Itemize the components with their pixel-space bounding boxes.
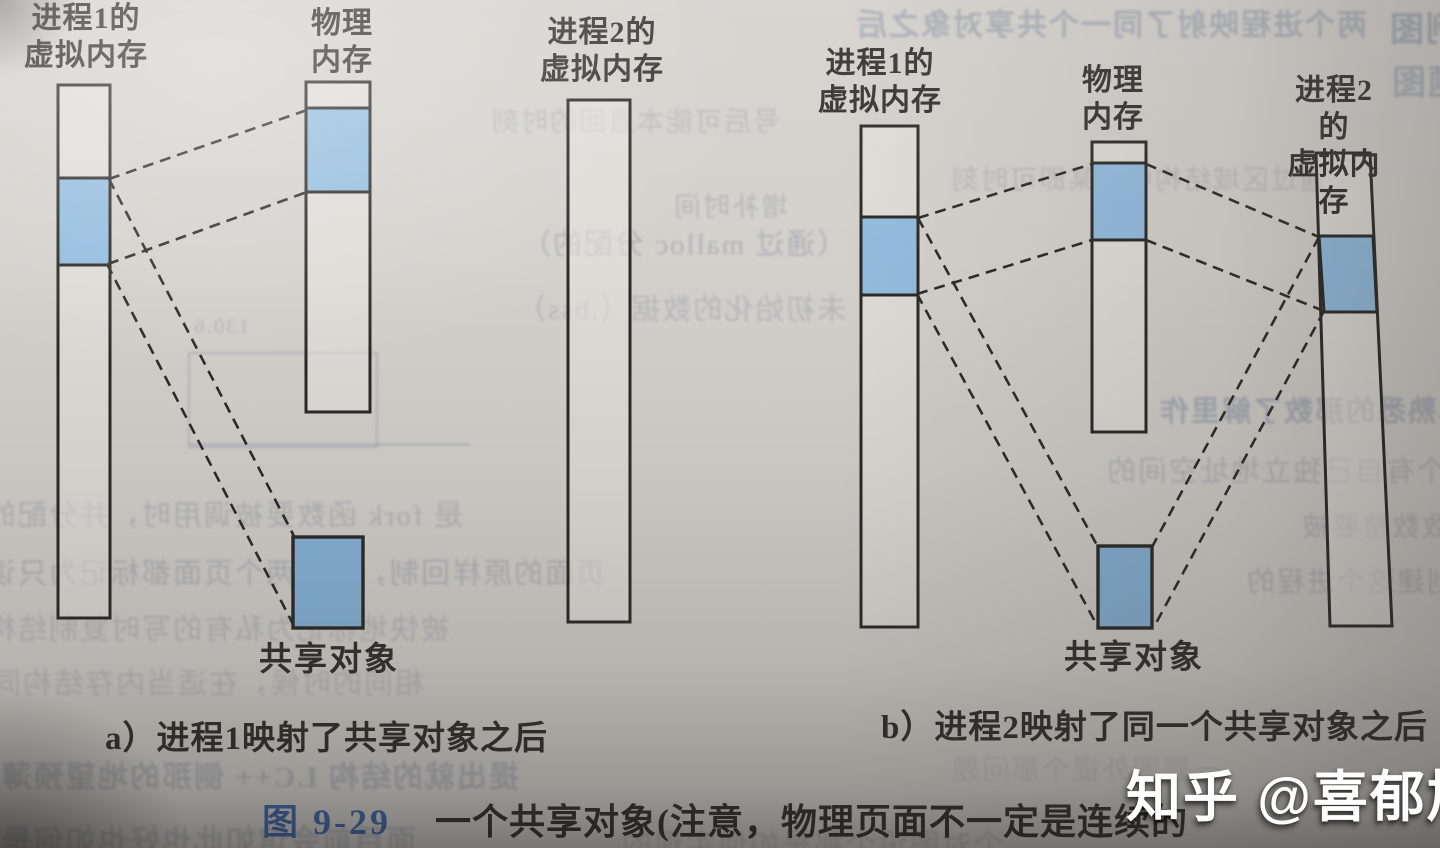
process2-shared-region-b xyxy=(1319,236,1377,312)
process2-vm-column-a xyxy=(568,100,630,622)
diagram-a xyxy=(58,82,630,628)
label-a-physical-mem: 物理 内存 xyxy=(311,5,373,79)
label-b-process1-vm: 进程1的 虚拟内存 xyxy=(818,45,942,119)
mapping-line xyxy=(107,264,294,626)
mapping-line xyxy=(918,164,1092,218)
shared-object-box-b xyxy=(1098,546,1152,628)
process1-shared-region-a xyxy=(58,178,110,265)
mapping-line xyxy=(917,240,1092,294)
mapping-line xyxy=(917,294,1098,627)
label-a-process1-vm: 进程1的 虚拟内存 xyxy=(24,0,148,74)
physical-shared-pages-b xyxy=(1092,163,1146,240)
figure-caption-text: 一个共享对象(注意，物理页面不一定是连续的 xyxy=(435,802,1188,842)
label-b-shared-object: 共享对象 xyxy=(1064,640,1204,677)
label-b-physical-mem: 物理 内存 xyxy=(1082,62,1144,136)
mapping-line xyxy=(109,110,307,179)
mapping-line xyxy=(1152,237,1319,547)
process2-vm-column-b xyxy=(1316,153,1392,626)
caption-diagram-a: a）进程1映射了共享对象之后 xyxy=(105,711,548,759)
mapping-line xyxy=(109,179,295,538)
label-a-process2-vm: 进程2的 虚拟内存 xyxy=(540,14,664,88)
label-b-process2-vm: 进程2的 虚拟内存 xyxy=(1281,72,1387,220)
caption-diagram-b: b）进程2映射了同一个共享对象之后 xyxy=(881,700,1428,748)
physical-shared-pages-a xyxy=(306,108,370,192)
process1-shared-region-b xyxy=(861,217,918,295)
process1-vm-column-a xyxy=(58,85,110,618)
mapping-line xyxy=(1154,311,1324,627)
mapping-line xyxy=(108,192,307,264)
textbook-photo-page: 两个进程映射了同一个共享对象之后 例图 题图 号后可能本直回的时刻 增补时间 （… xyxy=(0,0,1440,848)
mapping-line xyxy=(918,218,1098,547)
shared-object-box-a xyxy=(293,537,363,628)
label-a-shared-object: 共享对象 xyxy=(259,642,399,679)
zhihu-watermark: 知乎 @喜郁旭 xyxy=(1126,752,1440,832)
process1-vm-column-b xyxy=(861,126,918,627)
figure-number: 图 9-29 xyxy=(262,802,391,842)
figure-caption: 图 9-29一个共享对象(注意，物理页面不一定是连续的 xyxy=(262,793,1188,845)
